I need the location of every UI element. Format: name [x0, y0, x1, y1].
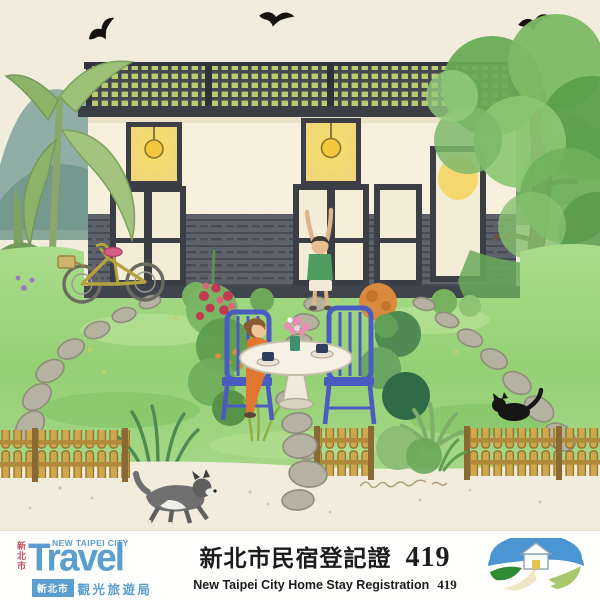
- homestay-illustration: [0, 0, 600, 530]
- registration-text: 新北市民宿登記證419 New Taipei City Home Stay Re…: [168, 538, 482, 594]
- glass-door-right: [374, 184, 422, 286]
- home-stay-association-logo: [482, 536, 590, 596]
- registration-label-bar: 新北市 Travel NEW TAIPEI CITY 新北市 觀光旅遊局 新北市…: [0, 530, 600, 600]
- travel-logo-bottom-row: 新北市 觀光旅遊局: [32, 579, 153, 598]
- tea-table-scene: [222, 308, 374, 424]
- travel-logo-city-box: 新北市: [32, 579, 74, 597]
- registration-title-en: New Taipei City Home Stay Registration: [193, 578, 429, 592]
- lit-window-left: [126, 122, 182, 186]
- home-stay-logo-icon: [486, 538, 586, 594]
- lit-window-center: [301, 118, 361, 186]
- travel-logo-bureau: 觀光旅遊局: [78, 579, 153, 598]
- travel-logo-city-vertical: 新北市: [16, 541, 25, 571]
- travel-logo-header: NEW TAIPEI CITY: [52, 538, 129, 548]
- registration-number-en: 419: [437, 577, 457, 592]
- homestay-registration-card: 新北市 Travel NEW TAIPEI CITY 新北市 觀光旅遊局 新北市…: [0, 0, 600, 600]
- registration-number: 419: [406, 542, 451, 573]
- registration-title-zh: 新北市民宿登記證: [200, 545, 392, 571]
- new-taipei-travel-logo: 新北市 Travel NEW TAIPEI CITY 新北市 觀光旅遊局: [10, 535, 168, 597]
